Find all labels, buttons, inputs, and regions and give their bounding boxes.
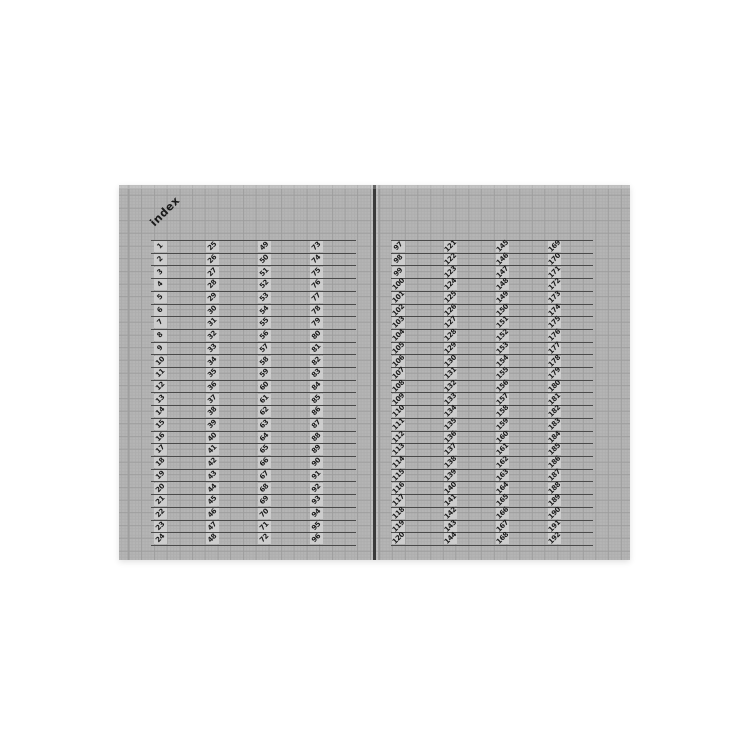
page-number: 55 bbox=[259, 317, 270, 328]
page-number: 34 bbox=[207, 355, 218, 366]
page-number: 22 bbox=[155, 508, 166, 519]
page-number: 83 bbox=[311, 368, 322, 379]
row-line bbox=[151, 443, 356, 444]
index-number-cell: 91 bbox=[310, 470, 323, 481]
index-number-cell: 145 bbox=[496, 241, 509, 252]
row-line bbox=[391, 507, 593, 508]
index-number-cell: 16 bbox=[154, 432, 167, 443]
page-number: 92 bbox=[311, 482, 322, 493]
index-number-cell: 167 bbox=[496, 521, 509, 532]
page-number: 75 bbox=[311, 266, 322, 277]
page-number: 39 bbox=[207, 419, 218, 430]
index-number-cell: 187 bbox=[548, 470, 561, 481]
page-number: 25 bbox=[207, 241, 218, 252]
index-number-cell: 4 bbox=[154, 279, 167, 290]
page-number: 64 bbox=[259, 432, 270, 443]
page-number: 17 bbox=[155, 444, 166, 455]
row-line bbox=[151, 278, 356, 279]
index-number-cell: 128 bbox=[444, 330, 457, 341]
row-line bbox=[391, 342, 593, 343]
index-number-cell: 43 bbox=[206, 470, 219, 481]
page-number: 81 bbox=[311, 343, 322, 354]
page-number: 29 bbox=[207, 292, 218, 303]
page-number: 38 bbox=[207, 406, 218, 417]
index-number-cell: 117 bbox=[392, 495, 405, 506]
index-number-cell: 48 bbox=[206, 533, 219, 544]
row-line bbox=[151, 481, 356, 482]
page-number: 99 bbox=[393, 266, 404, 277]
row-line bbox=[151, 418, 356, 419]
page-number: 16 bbox=[155, 432, 166, 443]
row-line bbox=[391, 418, 593, 419]
index-number-cell: 97 bbox=[392, 241, 405, 252]
index-number-cell: 70 bbox=[258, 508, 271, 519]
spine-divider bbox=[373, 185, 376, 560]
index-number-cell: 141 bbox=[444, 495, 457, 506]
index-number-cell: 165 bbox=[496, 495, 509, 506]
index-number-cell: 2 bbox=[154, 254, 167, 265]
page-number: 58 bbox=[259, 355, 270, 366]
index-number-cell: 139 bbox=[444, 470, 457, 481]
index-number-cell: 68 bbox=[258, 483, 271, 494]
row-line bbox=[151, 545, 356, 546]
page-number: 40 bbox=[207, 432, 218, 443]
page-number: 10 bbox=[155, 355, 166, 366]
index-number-cell: 15 bbox=[154, 419, 167, 430]
index-number-cell: 59 bbox=[258, 368, 271, 379]
index-number-cell: 102 bbox=[392, 305, 405, 316]
page-number: 95 bbox=[311, 520, 322, 531]
index-number-cell: 81 bbox=[310, 343, 323, 354]
index-number-cell: 162 bbox=[496, 457, 509, 468]
row-line bbox=[151, 342, 356, 343]
row-line bbox=[391, 520, 593, 521]
index-number-cell: 93 bbox=[310, 495, 323, 506]
row-line bbox=[391, 329, 593, 330]
row-line bbox=[151, 494, 356, 495]
page-number: 79 bbox=[311, 317, 322, 328]
index-number-cell: 174 bbox=[548, 305, 561, 316]
index-number-cell: 80 bbox=[310, 330, 323, 341]
index-number-cell: 100 bbox=[392, 279, 405, 290]
index-number-cell: 125 bbox=[444, 292, 457, 303]
row-line bbox=[151, 405, 356, 406]
page-number: 192 bbox=[547, 532, 562, 547]
index-number-cell: 173 bbox=[548, 292, 561, 303]
page-number: 69 bbox=[259, 495, 270, 506]
index-number-cell: 161 bbox=[496, 444, 509, 455]
page-number: 82 bbox=[311, 355, 322, 366]
index-number-cell: 131 bbox=[444, 368, 457, 379]
index-number-cell: 136 bbox=[444, 432, 457, 443]
index-number-cell: 37 bbox=[206, 394, 219, 405]
index-number-cell: 107 bbox=[392, 368, 405, 379]
index-number-cell: 179 bbox=[548, 368, 561, 379]
index-number-cell: 135 bbox=[444, 419, 457, 430]
page-number: 51 bbox=[259, 266, 270, 277]
page-number: 46 bbox=[207, 508, 218, 519]
index-number-cell: 76 bbox=[310, 279, 323, 290]
index-number-cell: 28 bbox=[206, 279, 219, 290]
row-line bbox=[391, 380, 593, 381]
index-number-cell: 182 bbox=[548, 406, 561, 417]
row-line bbox=[391, 405, 593, 406]
index-number-cell: 46 bbox=[206, 508, 219, 519]
index-number-cell: 60 bbox=[258, 381, 271, 392]
index-number-cell: 41 bbox=[206, 444, 219, 455]
index-number-cell: 23 bbox=[154, 521, 167, 532]
index-number-cell: 191 bbox=[548, 521, 561, 532]
page-top-edge bbox=[119, 185, 630, 189]
index-number-cell: 113 bbox=[392, 444, 405, 455]
index-number-cell: 189 bbox=[548, 495, 561, 506]
index-number-cell: 98 bbox=[392, 254, 405, 265]
notebook-spread: index 1234567891011121314151617181920212… bbox=[119, 185, 630, 560]
index-number-cell: 105 bbox=[392, 343, 405, 354]
index-number-cell: 129 bbox=[444, 343, 457, 354]
index-number-cell: 103 bbox=[392, 317, 405, 328]
page-number: 6 bbox=[156, 306, 164, 314]
index-number-cell: 156 bbox=[496, 381, 509, 392]
page-number: 30 bbox=[207, 305, 218, 316]
index-number-cell: 17 bbox=[154, 444, 167, 455]
page-number: 168 bbox=[495, 532, 510, 547]
page-number: 32 bbox=[207, 330, 218, 341]
index-number-cell: 13 bbox=[154, 394, 167, 405]
index-number-cell: 109 bbox=[392, 394, 405, 405]
index-number-cell: 14 bbox=[154, 406, 167, 417]
page-number: 24 bbox=[155, 533, 166, 544]
index-number-cell: 27 bbox=[206, 267, 219, 278]
index-title: index bbox=[145, 191, 185, 231]
index-number-cell: 61 bbox=[258, 394, 271, 405]
page-number: 74 bbox=[311, 254, 322, 265]
page-number: 85 bbox=[311, 393, 322, 404]
index-number-cell: 33 bbox=[206, 343, 219, 354]
page-number: 93 bbox=[311, 495, 322, 506]
index-number-cell: 172 bbox=[548, 279, 561, 290]
index-number-cell: 39 bbox=[206, 419, 219, 430]
index-number-cell: 163 bbox=[496, 470, 509, 481]
index-number-cell: 44 bbox=[206, 483, 219, 494]
index-number-cell: 134 bbox=[444, 406, 457, 417]
index-number-cell: 26 bbox=[206, 254, 219, 265]
index-number-cell: 56 bbox=[258, 330, 271, 341]
page-number: 129 bbox=[443, 341, 458, 356]
index-number-cell: 119 bbox=[392, 521, 405, 532]
index-number-cell: 72 bbox=[258, 533, 271, 544]
row-line bbox=[391, 253, 593, 254]
page-number: 20 bbox=[155, 482, 166, 493]
page-number: 53 bbox=[259, 292, 270, 303]
index-number-cell: 106 bbox=[392, 356, 405, 367]
row-line bbox=[391, 481, 593, 482]
index-number-cell: 115 bbox=[392, 470, 405, 481]
index-number-cell: 29 bbox=[206, 292, 219, 303]
index-number-cell: 38 bbox=[206, 406, 219, 417]
index-number-cell: 166 bbox=[496, 508, 509, 519]
page-number: 71 bbox=[259, 520, 270, 531]
index-number-cell: 82 bbox=[310, 356, 323, 367]
page-number: 18 bbox=[155, 457, 166, 468]
index-number-cell: 31 bbox=[206, 317, 219, 328]
index-number-cell: 176 bbox=[548, 330, 561, 341]
page-number: 31 bbox=[207, 317, 218, 328]
row-line bbox=[151, 431, 356, 432]
page-number: 21 bbox=[155, 495, 166, 506]
index-number-cell: 78 bbox=[310, 305, 323, 316]
index-number-cell: 55 bbox=[258, 317, 271, 328]
index-number-cell: 153 bbox=[496, 343, 509, 354]
page-number: 97 bbox=[393, 241, 404, 252]
row-line bbox=[391, 469, 593, 470]
row-line bbox=[391, 443, 593, 444]
row-line bbox=[151, 469, 356, 470]
page-number: 27 bbox=[207, 266, 218, 277]
index-number-cell: 32 bbox=[206, 330, 219, 341]
index-number-cell: 154 bbox=[496, 356, 509, 367]
index-number-cell: 164 bbox=[496, 483, 509, 494]
index-number-cell: 124 bbox=[444, 279, 457, 290]
page-number: 9 bbox=[156, 344, 164, 352]
index-number-cell: 132 bbox=[444, 381, 457, 392]
index-number-cell: 112 bbox=[392, 432, 405, 443]
page-number: 87 bbox=[311, 419, 322, 430]
index-number-cell: 89 bbox=[310, 444, 323, 455]
page-number: 91 bbox=[311, 470, 322, 481]
index-number-cell: 142 bbox=[444, 508, 457, 519]
index-number-cell: 6 bbox=[154, 305, 167, 316]
page-number: 3 bbox=[156, 268, 164, 276]
index-number-cell: 116 bbox=[392, 483, 405, 494]
index-number-cell: 123 bbox=[444, 267, 457, 278]
index-number-cell: 20 bbox=[154, 483, 167, 494]
page-number: 35 bbox=[207, 368, 218, 379]
page-number: 88 bbox=[311, 432, 322, 443]
row-line bbox=[151, 253, 356, 254]
index-number-cell: 158 bbox=[496, 406, 509, 417]
index-number-cell: 186 bbox=[548, 457, 561, 468]
index-number-cell: 95 bbox=[310, 521, 323, 532]
index-number-cell: 150 bbox=[496, 305, 509, 316]
index-number-cell: 192 bbox=[548, 533, 561, 544]
page-number: 49 bbox=[259, 241, 270, 252]
page-number: 11 bbox=[155, 368, 166, 379]
page-number: 42 bbox=[207, 457, 218, 468]
index-number-cell: 170 bbox=[548, 254, 561, 265]
index-number-cell: 175 bbox=[548, 317, 561, 328]
index-number-cell: 77 bbox=[310, 292, 323, 303]
index-number-cell: 96 bbox=[310, 533, 323, 544]
index-number-cell: 57 bbox=[258, 343, 271, 354]
page-number: 105 bbox=[391, 341, 406, 356]
index-number-cell: 36 bbox=[206, 381, 219, 392]
page-number: 90 bbox=[311, 457, 322, 468]
index-number-cell: 94 bbox=[310, 508, 323, 519]
row-line bbox=[391, 240, 593, 241]
page-number: 89 bbox=[311, 444, 322, 455]
index-number-cell: 151 bbox=[496, 317, 509, 328]
index-number-cell: 34 bbox=[206, 356, 219, 367]
page-number: 80 bbox=[311, 330, 322, 341]
page-number: 61 bbox=[259, 393, 270, 404]
row-line bbox=[151, 291, 356, 292]
page-number: 1 bbox=[156, 243, 164, 251]
index-number-cell: 10 bbox=[154, 356, 167, 367]
index-number-cell: 40 bbox=[206, 432, 219, 443]
index-number-cell: 177 bbox=[548, 343, 561, 354]
index-number-cell: 152 bbox=[496, 330, 509, 341]
index-number-cell: 143 bbox=[444, 521, 457, 532]
index-number-cell: 138 bbox=[444, 457, 457, 468]
index-number-cell: 144 bbox=[444, 533, 457, 544]
page-number: 65 bbox=[259, 444, 270, 455]
page-left: index 1234567891011121314151617181920212… bbox=[119, 185, 374, 560]
page-number: 72 bbox=[259, 533, 270, 544]
index-number-cell: 101 bbox=[392, 292, 405, 303]
index-number-cell: 84 bbox=[310, 381, 323, 392]
index-number-cell: 140 bbox=[444, 483, 457, 494]
index-number-cell: 190 bbox=[548, 508, 561, 519]
page-number: 94 bbox=[311, 508, 322, 519]
index-number-cell: 53 bbox=[258, 292, 271, 303]
page-number: 37 bbox=[207, 393, 218, 404]
index-number-cell: 149 bbox=[496, 292, 509, 303]
index-number-cell: 147 bbox=[496, 267, 509, 278]
index-number-cell: 88 bbox=[310, 432, 323, 443]
page-number: 96 bbox=[311, 533, 322, 544]
index-number-cell: 11 bbox=[154, 368, 167, 379]
page-number: 68 bbox=[259, 482, 270, 493]
page-number: 153 bbox=[495, 341, 510, 356]
index-number-cell: 126 bbox=[444, 305, 457, 316]
page-number: 62 bbox=[259, 406, 270, 417]
row-line bbox=[151, 520, 356, 521]
row-line bbox=[151, 354, 356, 355]
index-number-cell: 25 bbox=[206, 241, 219, 252]
index-number-cell: 157 bbox=[496, 394, 509, 405]
index-number-cell: 19 bbox=[154, 470, 167, 481]
page-number: 98 bbox=[393, 254, 404, 265]
page-number: 73 bbox=[311, 241, 322, 252]
page-number: 54 bbox=[259, 305, 270, 316]
page-number: 50 bbox=[259, 254, 270, 265]
index-number-cell: 12 bbox=[154, 381, 167, 392]
page-number: 60 bbox=[259, 381, 270, 392]
row-line bbox=[391, 367, 593, 368]
row-line bbox=[391, 316, 593, 317]
page-number: 13 bbox=[155, 393, 166, 404]
index-number-cell: 185 bbox=[548, 444, 561, 455]
row-line bbox=[151, 532, 356, 533]
row-line bbox=[151, 456, 356, 457]
page-number: 5 bbox=[156, 293, 164, 301]
index-number-cell: 180 bbox=[548, 381, 561, 392]
index-number-cell: 65 bbox=[258, 444, 271, 455]
index-number-cell: 54 bbox=[258, 305, 271, 316]
page-number: 56 bbox=[259, 330, 270, 341]
page-right: 9798991001011021031041051061071081091101… bbox=[375, 185, 630, 560]
index-number-cell: 137 bbox=[444, 444, 457, 455]
index-number-cell: 92 bbox=[310, 483, 323, 494]
index-number-cell: 67 bbox=[258, 470, 271, 481]
index-number-cell: 114 bbox=[392, 457, 405, 468]
index-number-cell: 71 bbox=[258, 521, 271, 532]
index-number-cell: 18 bbox=[154, 457, 167, 468]
index-number-cell: 9 bbox=[154, 343, 167, 354]
index-number-cell: 52 bbox=[258, 279, 271, 290]
row-line bbox=[151, 507, 356, 508]
index-number-cell: 159 bbox=[496, 419, 509, 430]
index-number-cell: 62 bbox=[258, 406, 271, 417]
page-number: 45 bbox=[207, 495, 218, 506]
index-number-cell: 168 bbox=[496, 533, 509, 544]
row-line bbox=[151, 329, 356, 330]
index-number-cell: 120 bbox=[392, 533, 405, 544]
index-number-cell: 79 bbox=[310, 317, 323, 328]
index-number-cell: 169 bbox=[548, 241, 561, 252]
index-number-cell: 21 bbox=[154, 495, 167, 506]
index-number-cell: 171 bbox=[548, 267, 561, 278]
index-number-cell: 181 bbox=[548, 394, 561, 405]
page-number: 86 bbox=[311, 406, 322, 417]
index-number-cell: 184 bbox=[548, 432, 561, 443]
index-number-cell: 183 bbox=[548, 419, 561, 430]
page-number: 33 bbox=[207, 343, 218, 354]
row-line bbox=[151, 380, 356, 381]
page-number: 63 bbox=[259, 419, 270, 430]
index-number-cell: 178 bbox=[548, 356, 561, 367]
index-number-cell: 42 bbox=[206, 457, 219, 468]
index-number-cell: 50 bbox=[258, 254, 271, 265]
index-number-cell: 7 bbox=[154, 317, 167, 328]
page-number: 66 bbox=[259, 457, 270, 468]
index-number-cell: 118 bbox=[392, 508, 405, 519]
index-number-cell: 90 bbox=[310, 457, 323, 468]
index-number-cell: 35 bbox=[206, 368, 219, 379]
index-number-cell: 69 bbox=[258, 495, 271, 506]
index-number-cell: 3 bbox=[154, 267, 167, 278]
index-number-cell: 85 bbox=[310, 394, 323, 405]
row-line bbox=[151, 240, 356, 241]
page-number: 41 bbox=[207, 444, 218, 455]
page-number: 26 bbox=[207, 254, 218, 265]
index-number-cell: 155 bbox=[496, 368, 509, 379]
page-number: 84 bbox=[311, 381, 322, 392]
row-line bbox=[391, 291, 593, 292]
page-number: 120 bbox=[391, 532, 406, 547]
index-number-cell: 87 bbox=[310, 419, 323, 430]
page-number: 43 bbox=[207, 470, 218, 481]
page-number: 19 bbox=[155, 470, 166, 481]
index-number-cell: 104 bbox=[392, 330, 405, 341]
index-number-cell: 47 bbox=[206, 521, 219, 532]
index-number-cell: 51 bbox=[258, 267, 271, 278]
index-number-cell: 146 bbox=[496, 254, 509, 265]
page-number: 70 bbox=[259, 508, 270, 519]
index-number-cell: 148 bbox=[496, 279, 509, 290]
row-line bbox=[391, 392, 593, 393]
page-number: 23 bbox=[155, 520, 166, 531]
row-line bbox=[391, 494, 593, 495]
index-number-cell: 66 bbox=[258, 457, 271, 468]
index-number-cell: 22 bbox=[154, 508, 167, 519]
page-number: 48 bbox=[207, 533, 218, 544]
page-number: 67 bbox=[259, 470, 270, 481]
index-number-cell: 64 bbox=[258, 432, 271, 443]
page-number: 7 bbox=[156, 319, 164, 327]
page-number: 78 bbox=[311, 305, 322, 316]
